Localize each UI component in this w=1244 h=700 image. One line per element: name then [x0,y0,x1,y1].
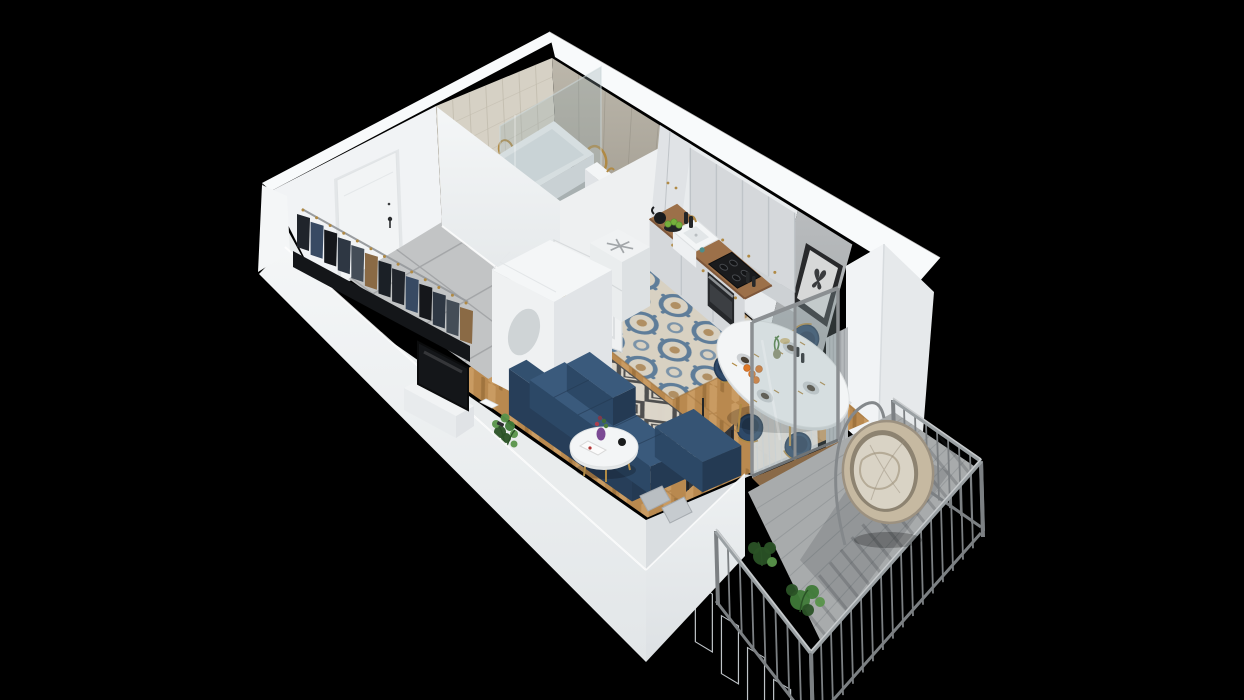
apartment-3d-scene [0,0,1244,700]
floorplan-render [0,0,1244,700]
